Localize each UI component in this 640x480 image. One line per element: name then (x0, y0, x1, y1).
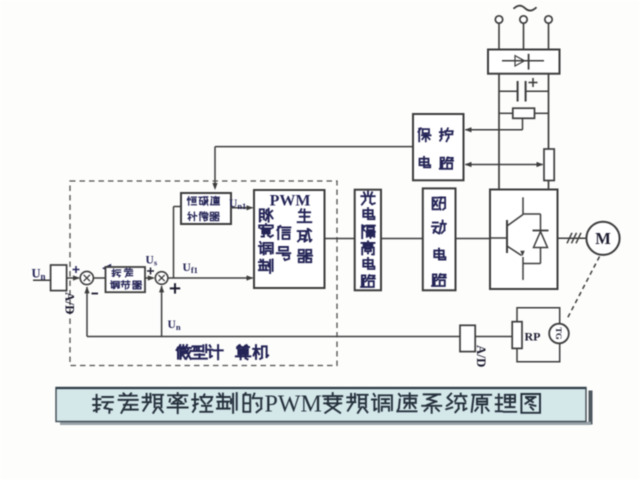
svg-text:TG: TG (554, 327, 564, 340)
svg-text:A/D: A/D (63, 292, 78, 314)
svg-text:A/D: A/D (474, 345, 489, 367)
svg-text:PWM: PWM (270, 193, 311, 210)
svg-text:PWM: PWM (265, 391, 322, 417)
svg-text:M: M (595, 229, 611, 248)
svg-text:RP: RP (525, 330, 541, 344)
